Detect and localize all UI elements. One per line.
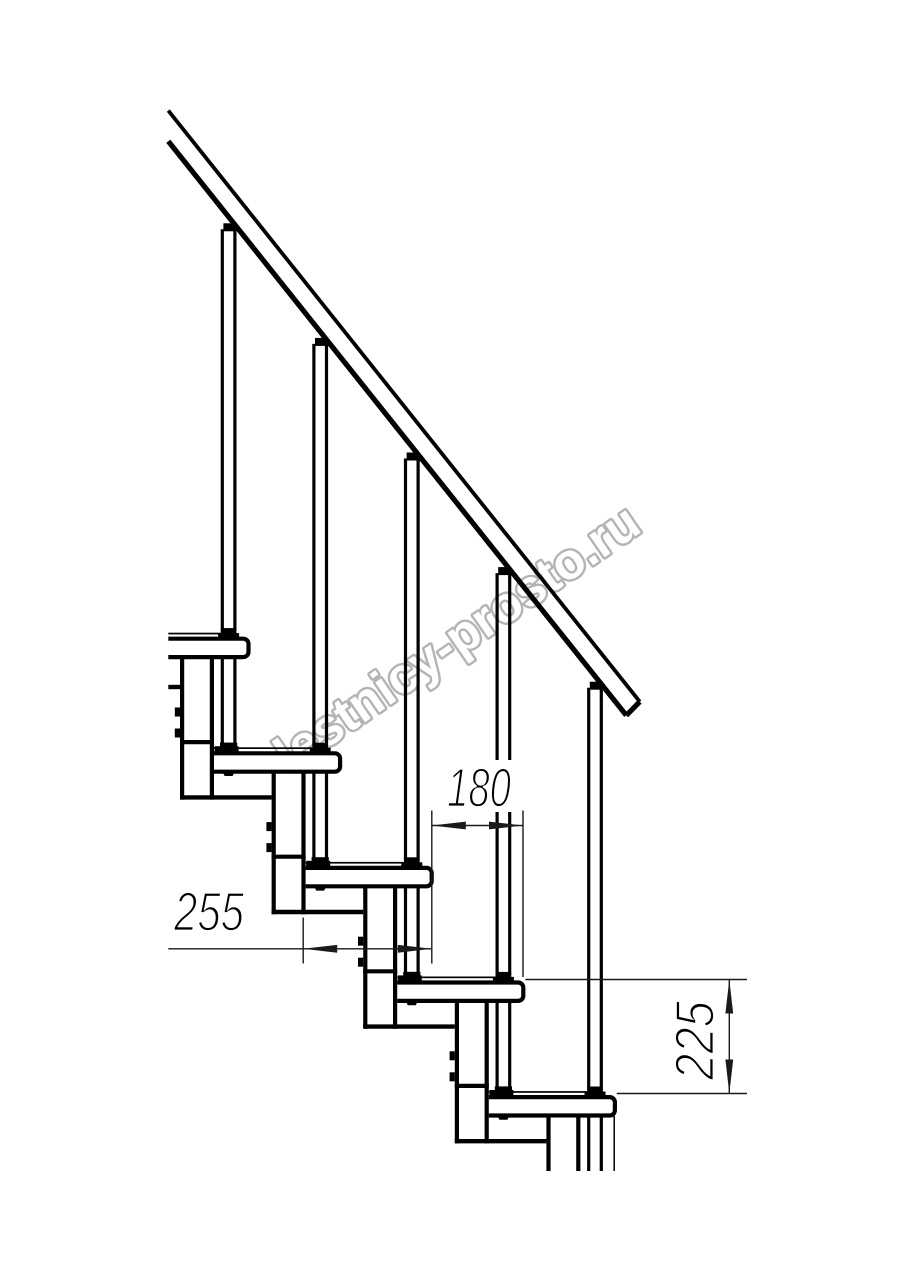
svg-text:180: 180: [447, 757, 511, 819]
svg-text:225: 225: [664, 1001, 726, 1081]
svg-text:255: 255: [173, 880, 244, 942]
